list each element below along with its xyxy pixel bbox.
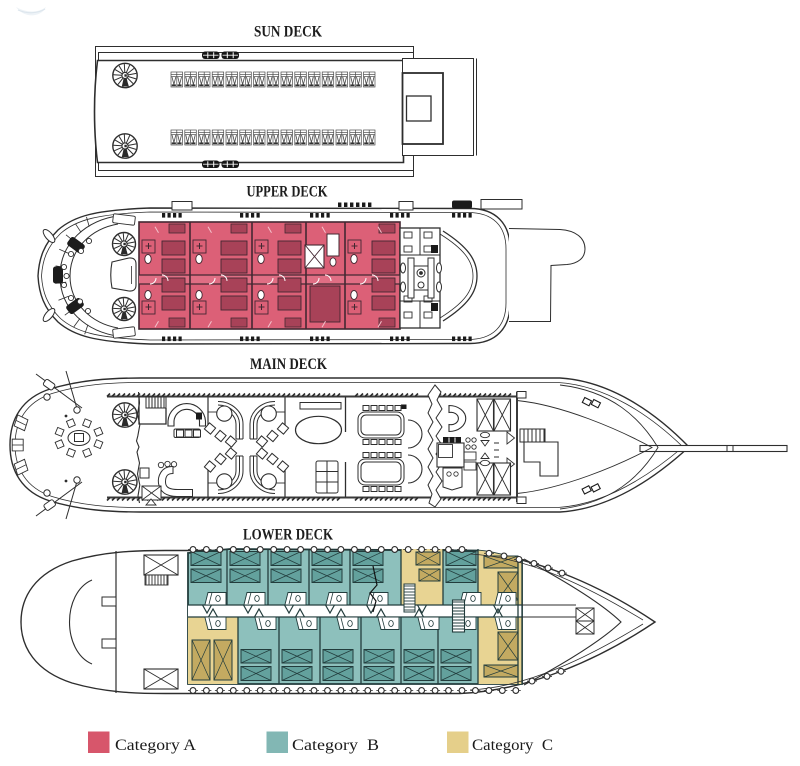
svg-text:Category A: Category A [115,737,196,754]
svg-text:SUN DECK: SUN DECK [254,24,322,41]
svg-text:UPPER DECK: UPPER DECK [247,184,328,201]
svg-text:LOWER DECK: LOWER DECK [243,527,333,544]
svg-text:Category B: Category B [292,737,379,754]
svg-text:MAIN DECK: MAIN DECK [250,356,327,373]
svg-text:Category C: Category C [472,737,553,754]
